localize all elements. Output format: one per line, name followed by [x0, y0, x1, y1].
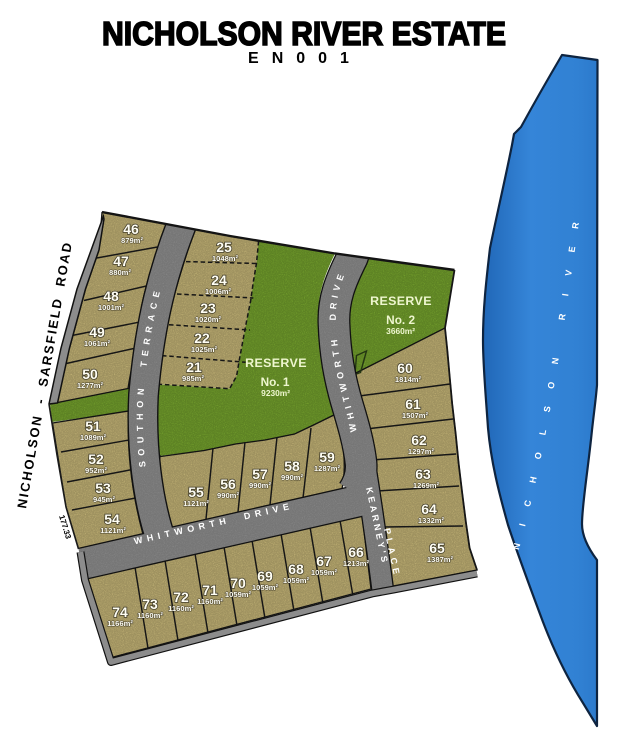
- svg-text:1814m²: 1814m²: [395, 375, 422, 384]
- svg-text:48: 48: [103, 288, 119, 304]
- svg-text:1089m²: 1089m²: [80, 433, 107, 442]
- svg-text:62: 62: [411, 432, 427, 448]
- svg-text:990m²: 990m²: [249, 481, 271, 490]
- svg-text:1166m²: 1166m²: [107, 619, 133, 628]
- svg-text:990m²: 990m²: [281, 473, 303, 482]
- svg-text:952m²: 952m²: [85, 466, 107, 475]
- svg-text:69: 69: [257, 568, 273, 584]
- svg-text:985m²: 985m²: [182, 374, 204, 383]
- svg-text:57: 57: [252, 466, 268, 482]
- svg-text:1213m²: 1213m²: [343, 559, 370, 568]
- svg-text:990m²: 990m²: [217, 491, 239, 500]
- svg-text:23: 23: [200, 300, 216, 316]
- svg-text:1020m²: 1020m²: [195, 315, 222, 324]
- svg-text:1160m²: 1160m²: [197, 597, 223, 606]
- svg-text:RESERVE: RESERVE: [370, 294, 432, 308]
- svg-text:945m²: 945m²: [93, 495, 115, 504]
- svg-text:1121m²: 1121m²: [100, 526, 126, 535]
- svg-text:1025m²: 1025m²: [191, 345, 218, 354]
- svg-text:49: 49: [89, 324, 105, 340]
- svg-text:1059m²: 1059m²: [311, 568, 338, 577]
- svg-text:1061m²: 1061m²: [84, 339, 111, 348]
- svg-text:1297m²: 1297m²: [408, 447, 435, 456]
- svg-text:1059m²: 1059m²: [252, 583, 279, 592]
- svg-text:879m²: 879m²: [121, 236, 143, 245]
- svg-text:1160m²: 1160m²: [137, 611, 163, 620]
- svg-text:1006m²: 1006m²: [205, 287, 232, 296]
- svg-text:1287m²: 1287m²: [314, 464, 341, 473]
- svg-text:51: 51: [85, 418, 101, 434]
- svg-text:1121m²: 1121m²: [183, 499, 209, 508]
- svg-text:74: 74: [112, 604, 128, 620]
- svg-text:1387m²: 1387m²: [427, 555, 454, 564]
- svg-text:52: 52: [88, 451, 104, 467]
- svg-text:66: 66: [348, 544, 364, 560]
- svg-text:64: 64: [421, 501, 437, 517]
- svg-text:1160m²: 1160m²: [168, 604, 194, 613]
- svg-text:880m²: 880m²: [109, 268, 131, 277]
- svg-text:56: 56: [220, 476, 236, 492]
- svg-text:RESERVE: RESERVE: [245, 356, 307, 370]
- svg-text:53: 53: [95, 480, 111, 496]
- svg-text:59: 59: [319, 449, 335, 465]
- svg-text:22: 22: [194, 330, 210, 346]
- svg-text:1001m²: 1001m²: [98, 303, 125, 312]
- svg-text:1059m²: 1059m²: [283, 576, 310, 585]
- svg-text:58: 58: [284, 458, 300, 474]
- svg-text:67: 67: [316, 553, 332, 569]
- svg-text:55: 55: [188, 484, 204, 500]
- svg-text:1277m²: 1277m²: [77, 381, 104, 390]
- svg-text:9230m²: 9230m²: [261, 388, 290, 398]
- svg-text:61: 61: [405, 396, 421, 412]
- svg-text:No. 2: No. 2: [386, 313, 415, 327]
- svg-text:72: 72: [173, 589, 189, 605]
- svg-text:21: 21: [186, 359, 202, 375]
- svg-text:1507m²: 1507m²: [402, 411, 429, 420]
- svg-text:25: 25: [216, 239, 232, 255]
- svg-text:47: 47: [113, 253, 129, 269]
- svg-text:NICHOLSON RIVER ESTATE: NICHOLSON RIVER ESTATE: [102, 15, 506, 52]
- svg-text:50: 50: [82, 366, 98, 382]
- svg-text:46: 46: [123, 221, 139, 237]
- svg-text:54: 54: [104, 511, 120, 527]
- svg-text:24: 24: [211, 272, 227, 288]
- svg-text:1048m²: 1048m²: [212, 254, 239, 263]
- svg-text:65: 65: [429, 540, 445, 556]
- svg-text:71: 71: [202, 582, 218, 598]
- svg-text:73: 73: [142, 596, 158, 612]
- svg-text:1059m²: 1059m²: [225, 590, 252, 599]
- svg-text:1269m²: 1269m²: [413, 481, 440, 490]
- svg-text:1332m²: 1332m²: [418, 516, 445, 525]
- svg-text:No. 1: No. 1: [261, 375, 290, 389]
- svg-text:EN001: EN001: [248, 50, 362, 67]
- svg-text:63: 63: [415, 466, 431, 482]
- svg-text:60: 60: [397, 360, 413, 376]
- svg-text:70: 70: [230, 575, 246, 591]
- svg-text:3660m²: 3660m²: [386, 326, 415, 336]
- svg-text:68: 68: [288, 561, 304, 577]
